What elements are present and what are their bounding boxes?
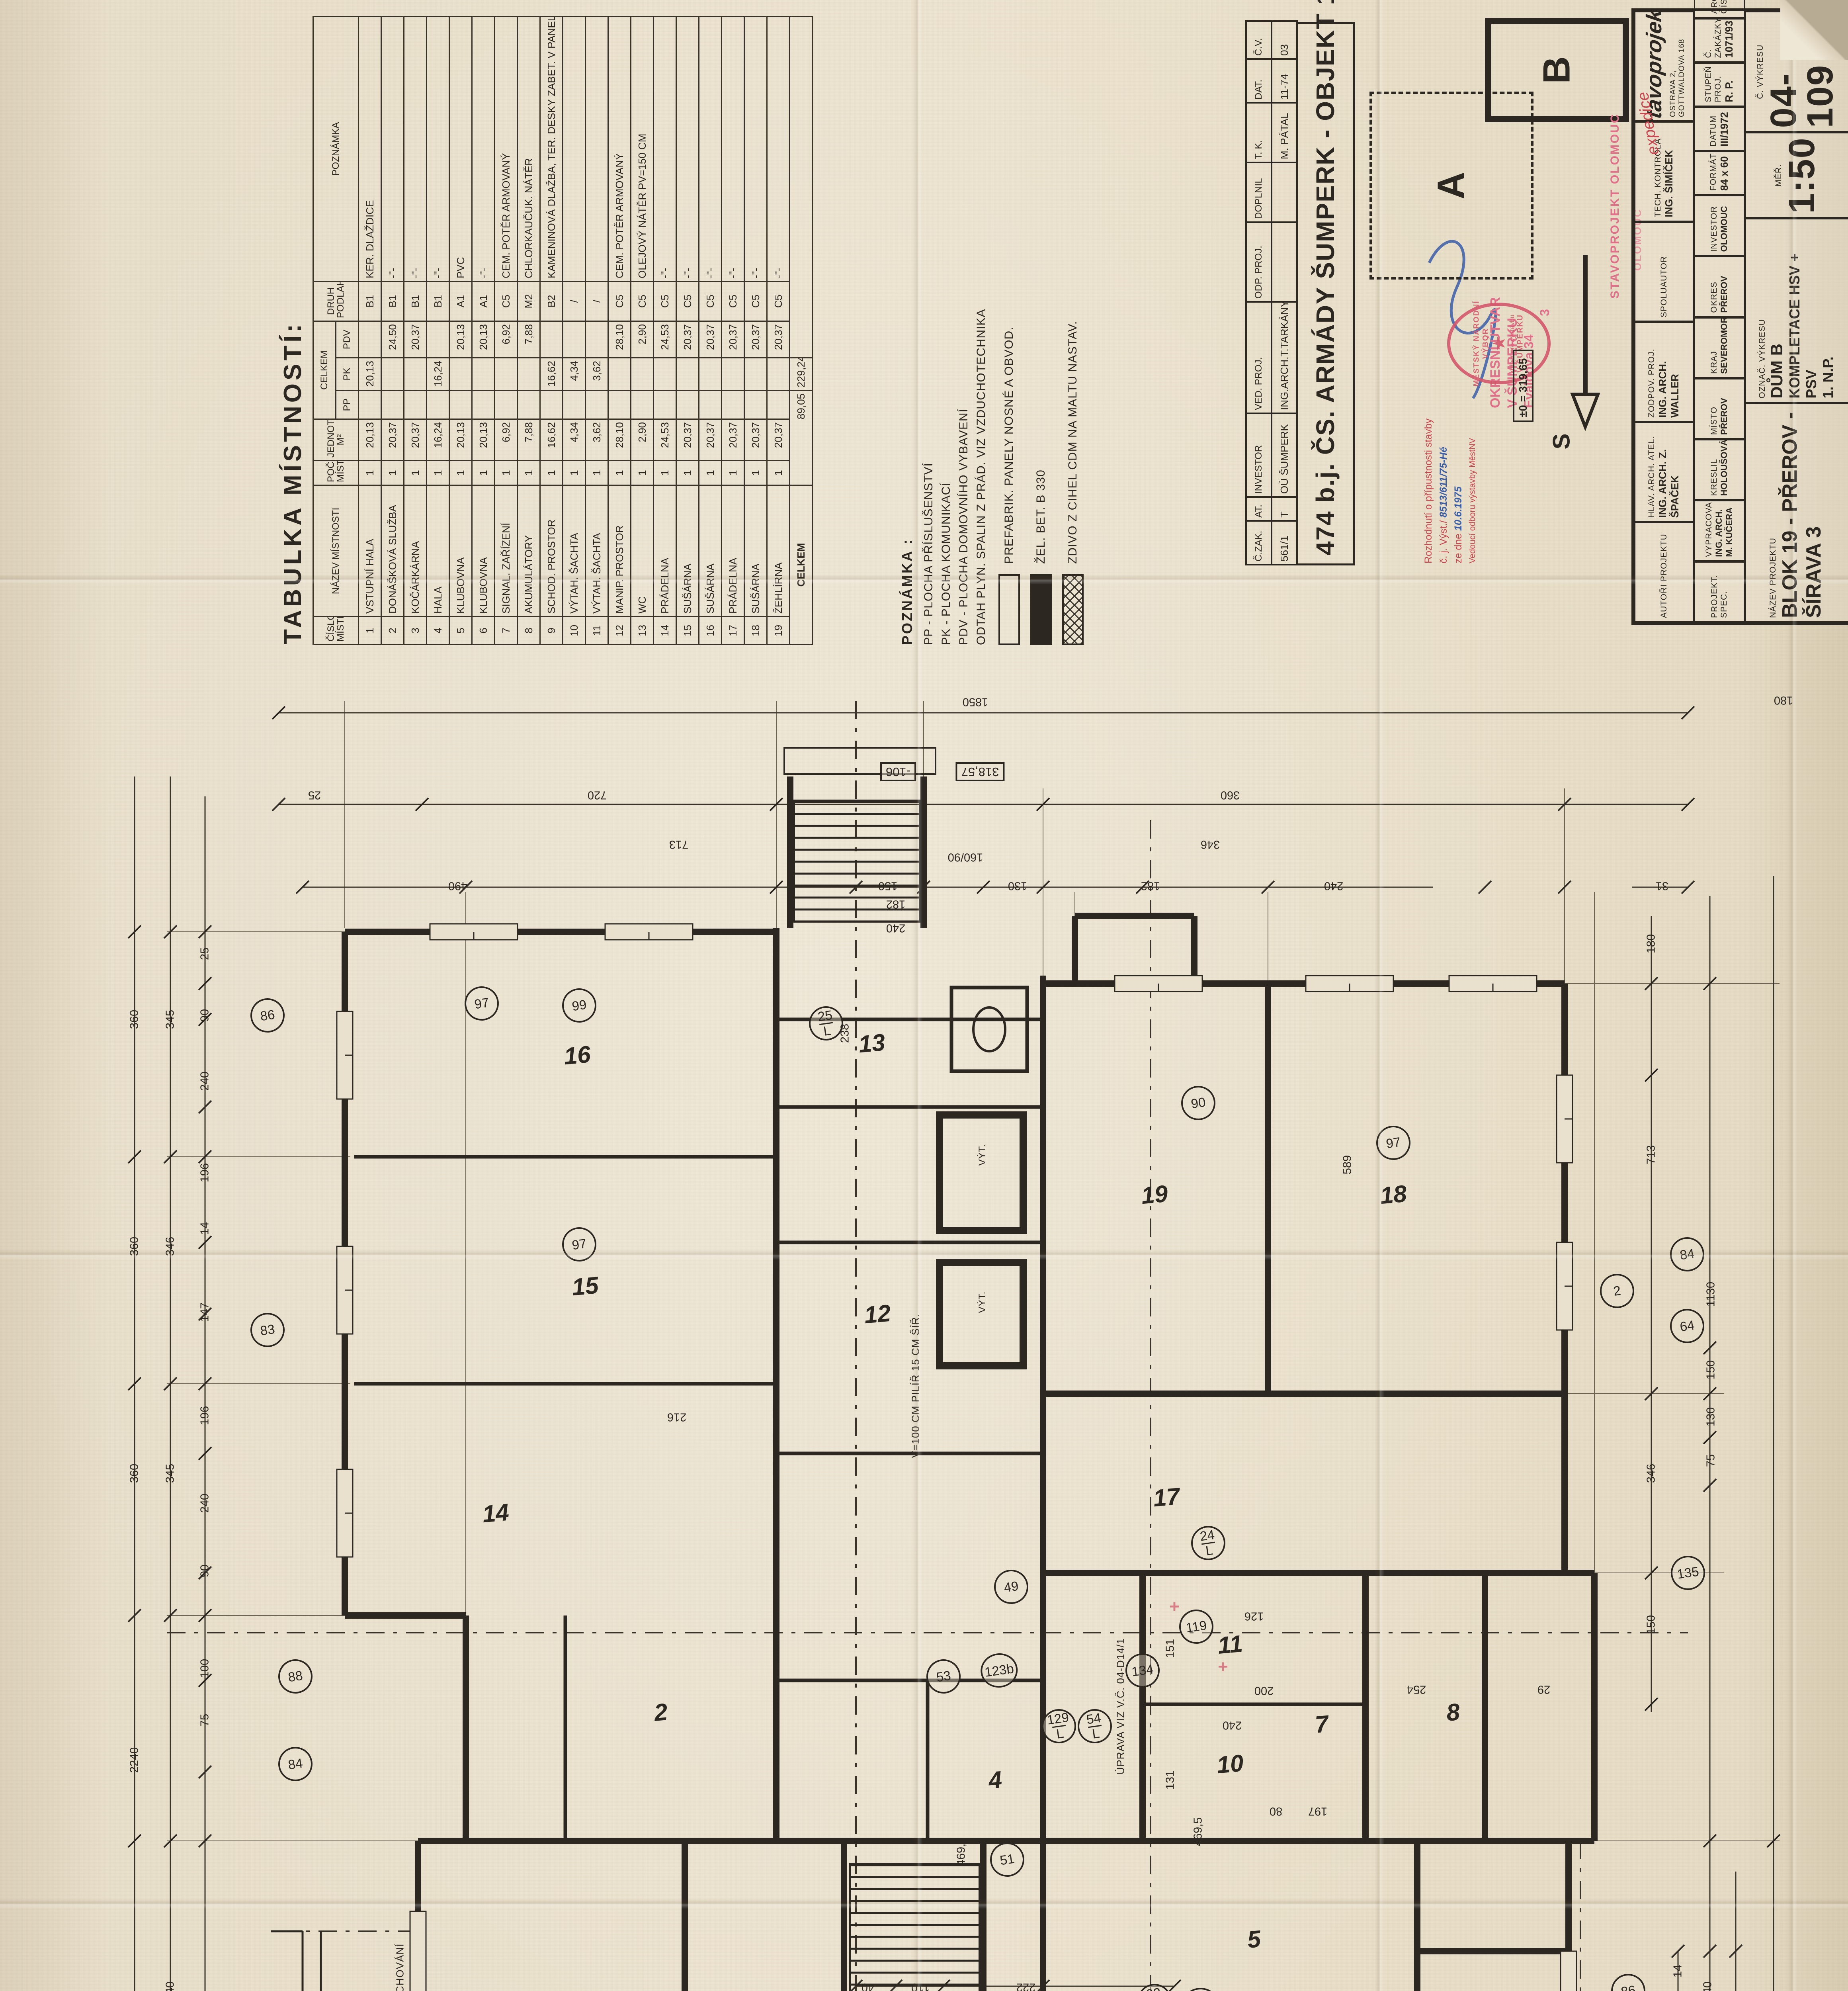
- person-cell: INVESTOROLOMOUC: [1694, 195, 1745, 256]
- table-cell: 4,34: [563, 419, 586, 461]
- dimension-text: 346: [1645, 1464, 1658, 1483]
- dimension-text: 150: [1645, 1615, 1658, 1634]
- table-row: 15SUŠÁRNA120,3720,37C5-"-: [676, 17, 699, 645]
- field-cell: STUPEŇ PROJ.R. P.: [1694, 63, 1745, 107]
- dimension-text: 713: [669, 838, 688, 851]
- strip-header: INVESTOR: [1246, 413, 1272, 497]
- field-value: 1071/93: [1723, 23, 1735, 58]
- legend-symbol-label: PREFABRIK. PANELY NOSNÉ A OBVOD.: [1002, 327, 1016, 564]
- table-cell: C5: [631, 281, 654, 321]
- table-cell: [495, 358, 518, 391]
- callout-number: 2: [1612, 1284, 1621, 1299]
- dimension-text: 182: [1141, 879, 1160, 892]
- table-total-row: CELKEM89,05229,24: [790, 17, 813, 645]
- table-row: 4HALA116,2416,24B1-"-: [427, 17, 449, 645]
- dimension-text: 25: [199, 947, 212, 960]
- dimension-text: 360: [128, 1237, 141, 1256]
- legend-line: ODTAH PLYN. SPALIN Z PRÁD. VIZ VZDUCHOTE…: [975, 275, 988, 645]
- table-row: 16SUŠÁRNA120,3720,37C5-"-: [699, 17, 722, 645]
- table-cell: VÝTAH. ŠACHTA: [586, 485, 608, 617]
- table-cell: 1: [495, 461, 518, 485]
- callout-number: 90: [1190, 1095, 1206, 1111]
- column-header: NÁZEV MÍSTNOSTI: [313, 485, 359, 617]
- table-cell: 2,90: [631, 419, 654, 461]
- table-cell: 1: [608, 461, 631, 485]
- table-cell: SUŠÁRNA: [676, 485, 699, 617]
- table-cell: 1: [540, 461, 563, 485]
- field-label: STUPEŇ PROJ.: [1704, 67, 1723, 102]
- person-label: MÍSTO: [1709, 383, 1719, 435]
- table-cell: 1: [404, 461, 427, 485]
- plan-note: VÝT.: [977, 1144, 988, 1166]
- legend-line: PP - PLOCHA PŘÍSLUŠENSTVÍ: [922, 275, 936, 645]
- callout-number: 97: [1385, 1135, 1401, 1150]
- drawing-sheet: 1615141312191817211107845631997998683972…: [0, 0, 1848, 1991]
- dimension-text: 469,5: [1192, 1817, 1205, 1846]
- table-cell: C5: [654, 281, 676, 321]
- dimension-text: 40: [861, 1981, 874, 1991]
- callout-number: 24: [1199, 1528, 1215, 1543]
- table-cell: -"-: [654, 17, 676, 282]
- decision-line: ze dne: [1453, 534, 1464, 563]
- table-cell: -"-: [699, 17, 722, 282]
- person-cell: SPOLUAUTOR: [1634, 222, 1694, 322]
- callout-number: 97: [571, 1236, 587, 1252]
- room-table-title: TABULKA MÍSTNOSTÍ:: [279, 16, 307, 644]
- callout-number: 25: [817, 1008, 833, 1024]
- table-cell: 1: [676, 461, 699, 485]
- table-cell: [472, 391, 495, 419]
- decision-stamp: Rozhodnutí o přípustnosti stavby č. j. V…: [1421, 352, 1481, 563]
- table-cell: 1: [631, 461, 654, 485]
- table-cell: [495, 391, 518, 419]
- room-number: 2: [653, 1698, 668, 1727]
- strip-value: 03: [1272, 21, 1297, 59]
- dimension-text: 200: [1254, 1684, 1274, 1697]
- table-cell: 20,37: [744, 419, 767, 461]
- callout-number: 86: [1620, 1983, 1636, 1991]
- table-cell: KLUBOVNA: [449, 485, 472, 617]
- table-cell: VÝTAH. ŠACHTA: [563, 485, 586, 617]
- strip-value: ING.ARCH.T.TARKÁNYI: [1272, 302, 1297, 413]
- callout-number: 54: [1086, 1711, 1102, 1727]
- table-cell: 1: [744, 461, 767, 485]
- callout-number: 86: [259, 1007, 275, 1023]
- table-cell: [540, 321, 563, 358]
- table-cell: 1: [722, 461, 744, 485]
- strip-value-row: 561/1TOÚ ŠUMPERKING.ARCH.T.TARKÁNYIM. PÁ…: [1272, 21, 1297, 565]
- dimension-text: 130: [1705, 1407, 1718, 1426]
- strip-value: [1272, 222, 1297, 302]
- legend-symbol-label: ZDIVO Z CIHEL CDM NA MALTU NASTAV.: [1066, 321, 1080, 564]
- table-cell: 9: [540, 617, 563, 645]
- table-cell: [586, 391, 608, 419]
- table-cell: 7,88: [518, 321, 540, 358]
- table-cell: KOČÁRKÁRNA: [404, 485, 427, 617]
- table-cell: 7: [495, 617, 518, 645]
- strip-value: 11-74: [1272, 59, 1297, 103]
- table-row: 8AKUMULÁTORY17,887,88M2CHLORKAUČUK. NÁTĚ…: [518, 17, 540, 645]
- dimension-text: 130: [1008, 879, 1027, 892]
- room-number: 13: [858, 1029, 887, 1058]
- drawing-name-cell: OZNAČ. VÝKRESU DŮM B KOMPLETACE HSV + PS…: [1745, 218, 1848, 403]
- table-cell: 1: [359, 461, 381, 485]
- callout-letter: L: [1052, 1725, 1068, 1741]
- table-cell: C5: [676, 281, 699, 321]
- table-cell: -"-: [767, 17, 790, 282]
- dimension-text: 197: [1308, 1805, 1327, 1818]
- table-row: 14PRÁDELNA124,5324,53C5-"-: [654, 17, 676, 645]
- room-number: 12: [863, 1299, 892, 1329]
- strip-header: DOPLNIL: [1246, 162, 1272, 222]
- room-number: 10: [1216, 1749, 1245, 1779]
- dimension-text: 589: [1341, 1155, 1354, 1174]
- table-row: 6KLUBOVNA120,1320,13A1-"-: [472, 17, 495, 645]
- callout-number: 88: [287, 1668, 303, 1684]
- table-cell: 20,37: [381, 419, 404, 461]
- strip-value: 561/1: [1272, 521, 1297, 565]
- table-cell: A1: [472, 281, 495, 321]
- table-cell: B1: [381, 281, 404, 321]
- field-cell: FORMÁT84 x 60: [1694, 151, 1745, 195]
- callout-number: 84: [1679, 1246, 1695, 1262]
- column-header: CELKEM: [313, 321, 336, 419]
- total-cell: [790, 17, 813, 358]
- round-stamp-top: MĚSTSKÝ NÁRODNÍ VÝBOR: [1473, 294, 1491, 393]
- field-label: Č. ZAKÁZKY: [1704, 23, 1723, 58]
- table-cell: SCHOD. PROSTOR: [540, 485, 563, 617]
- dimension-text: 90: [199, 1565, 212, 1577]
- dimension-text: 216: [667, 1410, 686, 1424]
- table-row: 10VÝTAH. ŠACHTA14,344,34/: [563, 17, 586, 645]
- callout-number: 134: [1131, 1662, 1154, 1679]
- legend-heading: POZNÁMKA :: [899, 275, 916, 645]
- column-header: POZNÁMKA: [313, 17, 359, 282]
- dimension-text: 196: [199, 1406, 212, 1425]
- table-cell: /: [563, 281, 586, 321]
- dimension-text: 1130: [1705, 1282, 1718, 1306]
- room-number: 5: [1246, 1925, 1262, 1954]
- drawing-name-line: 1. N.P.: [1820, 223, 1836, 398]
- table-row: 7SIGNAL. ZAŘÍZENÍ16,926,92C5CEM. POTĚR A…: [495, 17, 518, 645]
- elevation-stamp: ±0 = 319,65: [1513, 350, 1545, 422]
- table-cell: 4,34: [563, 358, 586, 391]
- table-cell: 16,24: [427, 419, 449, 461]
- person-value: HOLOUŠOVÁ: [1719, 444, 1729, 496]
- dimension-text: 360: [128, 1010, 141, 1029]
- table-cell: [586, 321, 608, 358]
- strip-header: ODP. PROJ.: [1246, 222, 1272, 302]
- dimension-text: 240: [199, 1072, 212, 1091]
- person-cell: MÍSTOPŘEROV: [1694, 378, 1745, 439]
- table-cell: 1: [427, 461, 449, 485]
- table-cell: KLUBOVNA: [472, 485, 495, 617]
- person-value: ING. ARCH. Z. ŠPAČEK: [1657, 426, 1681, 518]
- table-cell: [608, 391, 631, 419]
- field-value: 84 x 60: [1718, 155, 1731, 191]
- person-label: HLAV. ARCH. ATEL.: [1647, 426, 1657, 518]
- dimension-text: 120/80: [1097, 1989, 1133, 1991]
- callout-number: 53: [935, 1668, 951, 1684]
- table-cell: 14: [654, 617, 676, 645]
- callout-number: 135: [1676, 1565, 1700, 1581]
- project-name: BLOK 19 - PŘEROV - ŠÍRAVA 3: [1778, 407, 1826, 618]
- table-cell: WC: [631, 485, 654, 617]
- dimension-text: 126: [1244, 1610, 1264, 1623]
- keyplan-b-label: B: [1535, 56, 1579, 84]
- plan-note: ÚPRAVA VIZ V.Č. 04-D14/1: [1115, 1638, 1127, 1775]
- strip-value: T: [1272, 497, 1297, 521]
- elevation-box: -106: [880, 762, 916, 781]
- table-cell: [631, 358, 654, 391]
- table-cell: 1: [381, 461, 404, 485]
- table-cell: VSTUPNÍ HALA: [359, 485, 381, 617]
- table-cell: PRÁDELNA: [654, 485, 676, 617]
- field-cell: Č. ZAKÁZKY1071/93: [1694, 18, 1745, 63]
- table-cell: 20,37: [699, 419, 722, 461]
- column-header: DRUH PODLAHY: [313, 281, 359, 321]
- room-number: 7: [1314, 1710, 1329, 1739]
- total-cell: 89,05: [790, 391, 813, 485]
- scale-value: 1:50: [1784, 137, 1820, 213]
- table-cell: 6: [472, 617, 495, 645]
- table-cell: C5: [767, 281, 790, 321]
- table-cell: [449, 391, 472, 419]
- person-label: ZODPOV. PROJ.: [1647, 326, 1657, 418]
- table-cell: [381, 358, 404, 391]
- table-cell: 20,13: [359, 419, 381, 461]
- scale-cell: MĚŘ. 1:50: [1745, 132, 1848, 218]
- plan-note: OPLECHOVÁNÍ: [394, 1944, 406, 1991]
- callout-number: 129: [1046, 1710, 1070, 1727]
- table-cell: PVC: [449, 17, 472, 282]
- dimension-text: 222: [1016, 1981, 1035, 1991]
- field-label: DATUM: [1709, 111, 1718, 147]
- plan-note: S: [1548, 433, 1575, 449]
- dimension-text: 180: [1774, 694, 1793, 707]
- table-cell: 17: [722, 617, 744, 645]
- table-row: 19ŽEHLÍRNA120,3720,37C5-"-: [767, 17, 790, 645]
- table-cell: [631, 391, 654, 419]
- table-cell: SIGNAL. ZAŘÍZENÍ: [495, 485, 518, 617]
- strip-value: [1272, 162, 1297, 222]
- room-number: 8: [1445, 1698, 1461, 1727]
- elevation-box: 318,57: [956, 762, 1005, 781]
- table-cell: [699, 391, 722, 419]
- person-label: KRESLIL: [1709, 444, 1719, 496]
- table-cell: 24,50: [381, 321, 404, 358]
- main-titleblock: AUTOŘI PROJEKTUHLAV. ARCH. ATEL.ING. ARC…: [1631, 11, 1848, 625]
- table-cell: [722, 358, 744, 391]
- table-cell: [563, 321, 586, 358]
- table-cell: 16,62: [540, 358, 563, 391]
- drawing-number-cell: Č. VÝKRESU 04-109: [1745, 11, 1848, 132]
- dimension-text: 340: [164, 1981, 177, 1991]
- dimension-text: 360: [128, 1464, 141, 1483]
- table-cell: 20,37: [676, 419, 699, 461]
- table-cell: C5: [608, 281, 631, 321]
- table-cell: 1: [654, 461, 676, 485]
- person-cell: KRAJSEVEROMORAVSKÝ: [1694, 317, 1745, 378]
- total-cell: 229,24: [790, 358, 813, 391]
- dimension-text: 131: [1164, 1770, 1177, 1790]
- table-cell: [676, 358, 699, 391]
- table-cell: 3,62: [586, 358, 608, 391]
- table-cell: PRÁDELNA: [722, 485, 744, 617]
- table-cell: 28,10: [608, 419, 631, 461]
- table-row: 2DONÁŠKOVÁ SLUŽBA120,3724,50B1-"-: [381, 17, 404, 645]
- dimension-text: 100: [199, 1659, 212, 1678]
- table-cell: 20,13: [449, 321, 472, 358]
- dimension-text: 14: [199, 1222, 212, 1235]
- pink-stamp-text: STAVOPROJEKT OLOMOUC: [1608, 44, 1622, 299]
- field-cell: ARCH. ČÍS.: [1694, 0, 1745, 18]
- room-table: ČÍSLO MÍSTN.NÁZEV MÍSTNOSTIPOČ. MÍST.JED…: [313, 16, 813, 645]
- table-cell: 2,90: [631, 321, 654, 358]
- field-label: ARCH. ČÍS.: [1710, 0, 1729, 14]
- table-cell: [744, 358, 767, 391]
- table-cell: 5: [449, 617, 472, 645]
- decision-line: č. j. Výst./: [1438, 520, 1449, 563]
- table-cell: -"-: [676, 17, 699, 282]
- person-label: KRAJ: [1709, 322, 1719, 374]
- table-cell: 1: [449, 461, 472, 485]
- dimension-text: 346: [1201, 838, 1220, 851]
- table-cell: [404, 358, 427, 391]
- legend-symbol-row: ZDIVO Z CIHEL CDM NA MALTU NASTAV.: [1062, 275, 1084, 645]
- strip-table: Č.ZAK.AT.INVESTORVED. PROJ.ODP. PROJ.DOP…: [1245, 20, 1298, 565]
- legend-line: PK - PLOCHA KOMUNIKACÍ: [940, 275, 953, 645]
- dimension-text: 469,5: [955, 1837, 968, 1866]
- table-cell: DONÁŠKOVÁ SLUŽBA: [381, 485, 404, 617]
- table-row: 12MANIP. PROSTOR128,1028,10C5CEM. POTĚR …: [608, 17, 631, 645]
- logo-address: OSTRAVA 2, GOTTWALDOVA 168: [1669, 16, 1686, 117]
- column-subheader: PP: [336, 391, 359, 419]
- person-label: SPOLUAUTOR: [1659, 226, 1669, 318]
- table-row: 3KOČÁRKÁRNA120,3720,37B1-"-: [404, 17, 427, 645]
- table-cell: 28,10: [608, 321, 631, 358]
- table-cell: M2: [518, 281, 540, 321]
- table-cell: 20,13: [449, 419, 472, 461]
- callout-letter: L: [819, 1022, 835, 1039]
- table-cell: -"-: [472, 17, 495, 282]
- person-cell: HLAV. ARCH. ATEL.ING. ARCH. Z. ŠPAČEK: [1634, 422, 1694, 522]
- table-cell: 4: [427, 617, 449, 645]
- dimension-text: 196: [199, 1163, 212, 1182]
- table-cell: 13: [631, 617, 654, 645]
- table-cell: [654, 358, 676, 391]
- person-value: SEVEROMORAVSKÝ: [1719, 322, 1729, 374]
- dimension-text: 147: [199, 1303, 212, 1322]
- person-cell: OKRESPŘEROV: [1694, 256, 1745, 317]
- table-cell: 20,37: [676, 321, 699, 358]
- table-cell: [608, 358, 631, 391]
- legend-block: POZNÁMKA : PP - PLOCHA PŘÍSLUŠENSTVÍPK -…: [899, 275, 1158, 645]
- callout-number: 97: [473, 995, 490, 1011]
- table-cell: 18: [744, 617, 767, 645]
- column-subheader: PK: [336, 358, 359, 391]
- strip-header: VED. PROJ.: [1246, 302, 1272, 413]
- red-plus-mark: +: [1218, 1657, 1228, 1677]
- callout-number: 22: [1145, 1986, 1162, 1991]
- dimension-text: 720: [588, 788, 607, 802]
- field-value: III/1972: [1718, 111, 1731, 147]
- table-cell: [449, 358, 472, 391]
- drawing-name-line: DŮM B: [1767, 223, 1786, 398]
- dimension-text: 2240: [128, 1747, 141, 1773]
- hatch-wall-swatch: [1062, 574, 1084, 645]
- table-cell: [699, 358, 722, 391]
- table-cell: -"-: [427, 17, 449, 282]
- table-cell: 1: [586, 461, 608, 485]
- table-cell: SUŠÁRNA: [699, 485, 722, 617]
- table-cell: B1: [359, 281, 381, 321]
- callout-number: 83: [259, 1322, 275, 1338]
- room-number: 4: [987, 1766, 1003, 1794]
- table-cell: [654, 391, 676, 419]
- table-cell: 1: [359, 617, 381, 645]
- table-row: 17PRÁDELNA120,3720,37C5-"-: [722, 17, 744, 645]
- room-number: 11: [1217, 1630, 1244, 1659]
- person-cell: ZODPOV. PROJ.ING. ARCH. WALLER: [1634, 322, 1694, 422]
- column-header: JEDNOT. M²: [313, 419, 359, 461]
- emblem-icon: ★: [1491, 294, 1508, 393]
- legend-line: PDV - PLOCHA DOMOVNÍHO VYBAVENÍ: [957, 275, 971, 645]
- table-cell: /: [586, 281, 608, 321]
- table-cell: [676, 391, 699, 419]
- table-cell: [404, 391, 427, 419]
- table-row: 1VSTUPNÍ HALA120,1320,13B1KER. DLAŽDICE: [359, 17, 381, 645]
- table-cell: 24,53: [654, 419, 676, 461]
- dimension-text: 1850: [963, 695, 988, 708]
- table-cell: 6,92: [495, 419, 518, 461]
- table-cell: 8: [518, 617, 540, 645]
- project-name-label: NÁZEV PROJEKTU: [1768, 407, 1778, 618]
- dimension-text: 240: [1223, 1719, 1242, 1732]
- table-cell: 16,24: [427, 358, 449, 391]
- table-cell: [767, 358, 790, 391]
- table-cell: A1: [449, 281, 472, 321]
- table-cell: 24,53: [654, 321, 676, 358]
- table-cell: AKUMULÁTORY: [518, 485, 540, 617]
- table-cell: 16: [699, 617, 722, 645]
- callout-number: 84: [287, 1756, 303, 1772]
- table-cell: [381, 391, 404, 419]
- dimension-text: 75: [199, 1714, 212, 1727]
- dimension-text: 29: [1537, 1683, 1550, 1696]
- table-cell: C5: [495, 281, 518, 321]
- pink-stamp-1: STAVOPROJEKT OLOMOUC: [1608, 44, 1631, 299]
- dimension-text: 180: [1645, 934, 1658, 953]
- table-cell: 1: [767, 461, 790, 485]
- dimension-text: 713: [1645, 1145, 1658, 1164]
- table-cell: [427, 321, 449, 358]
- legend-symbol-row: PREFABRIK. PANELY NOSNÉ A OBVOD.: [998, 275, 1020, 645]
- table-cell: 16,62: [540, 419, 563, 461]
- table-row: 13WC12,902,90C5OLEJOVÝ NÁTĚR PV=150 CM: [631, 17, 654, 645]
- dimension-text: 345: [164, 1464, 177, 1483]
- table-cell: [767, 391, 790, 419]
- table-cell: 20,37: [699, 321, 722, 358]
- person-cell: VYPRACOVALING. ARCH. M. KUČERA: [1694, 500, 1745, 561]
- legend-symbol-label: ŽEL. BET. B 330: [1034, 469, 1048, 564]
- table-cell: [540, 391, 563, 419]
- dimension-text: 151: [1164, 1639, 1177, 1658]
- person-label: OKRES: [1709, 260, 1719, 313]
- table-cell: CEM. POTĚR ARMOVANÝ: [608, 17, 631, 282]
- dimension-text: 150: [878, 879, 897, 892]
- table-cell: -"-: [381, 17, 404, 282]
